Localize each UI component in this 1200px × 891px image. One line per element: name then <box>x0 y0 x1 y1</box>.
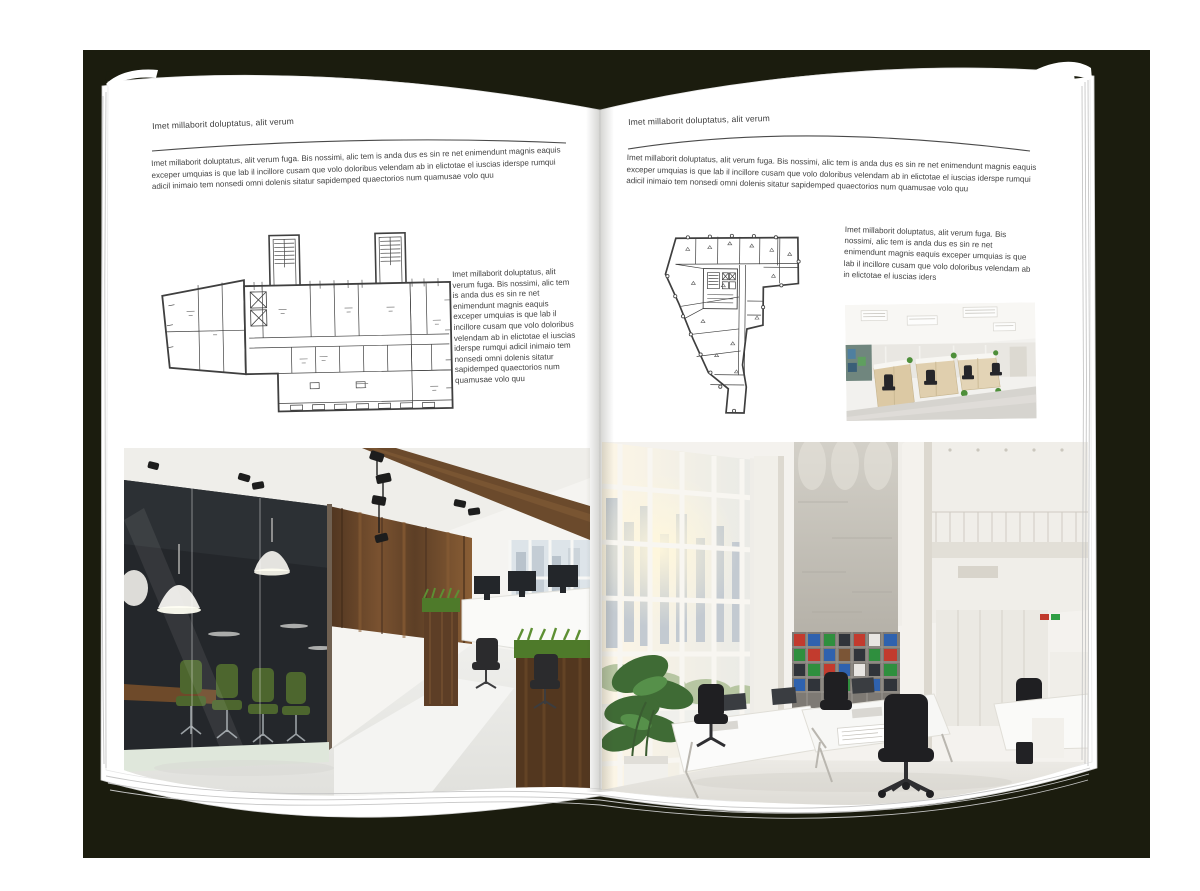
left-floor-plan <box>157 230 455 416</box>
right-page-caption: Imet millaborit doluptatus, alit verum f… <box>843 224 1035 286</box>
office-interior-photo <box>124 448 590 802</box>
left-page-photo <box>124 448 590 802</box>
office-atrium-photo <box>602 442 1088 808</box>
right-floor-plan <box>650 224 804 418</box>
office-cubicles-photo <box>845 302 1037 421</box>
right-page-small-photo <box>845 302 1037 421</box>
floor-plan-drawing <box>157 230 455 416</box>
left-page-caption: Imet millaborit doluptatus, alit verum f… <box>452 267 577 387</box>
floor-plan-drawing <box>650 224 804 418</box>
right-page-photo <box>602 442 1088 808</box>
